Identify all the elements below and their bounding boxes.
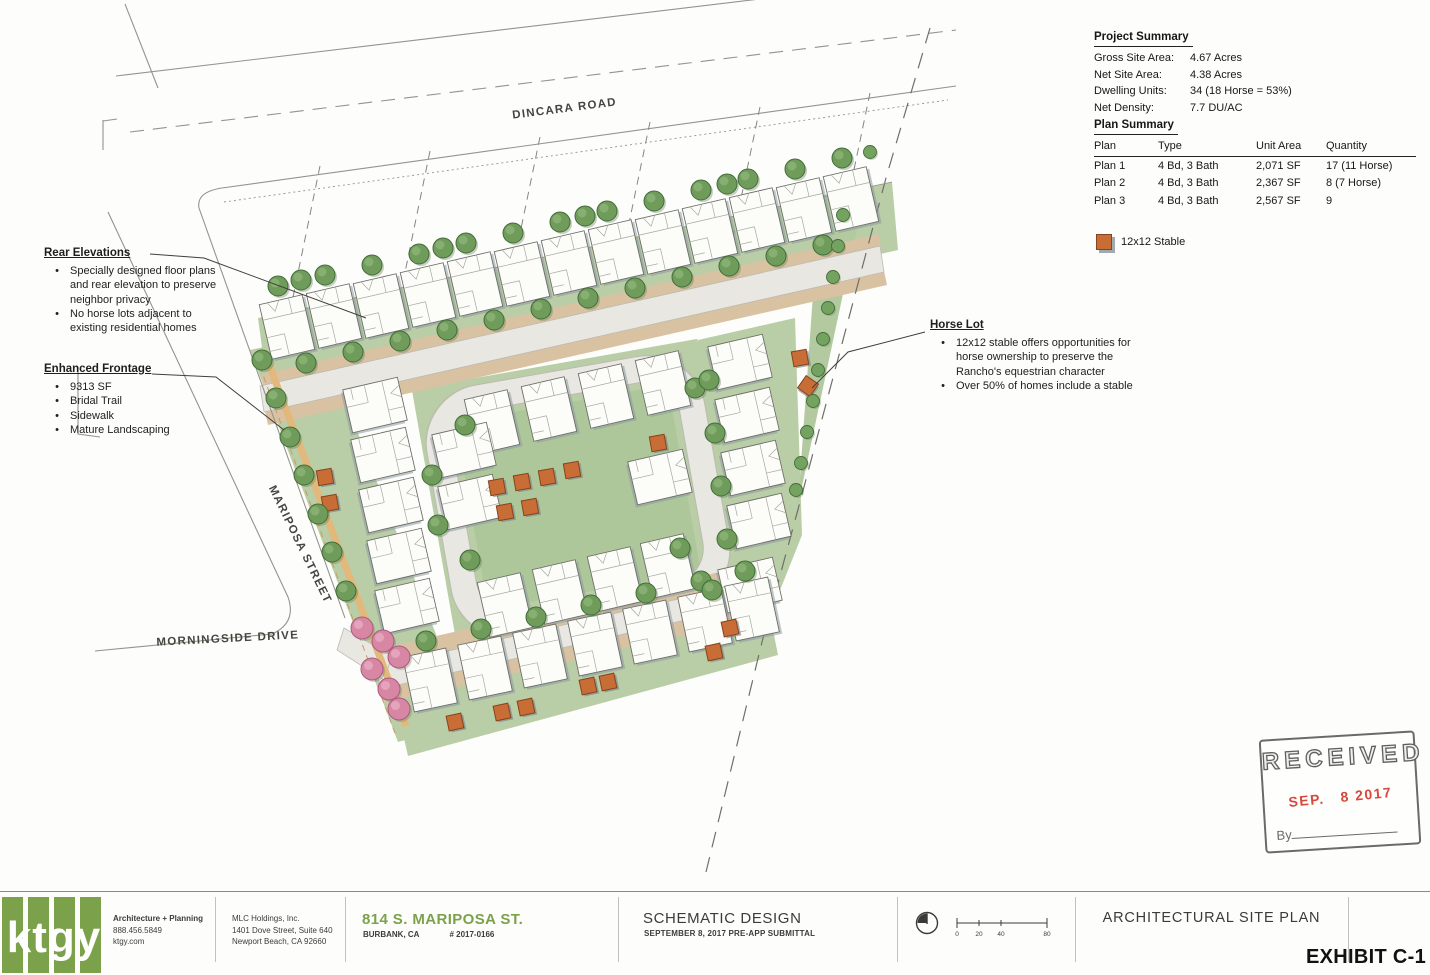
callout-bullet: •No horse lots adjacent to existing resi… bbox=[44, 307, 232, 336]
svg-text:20: 20 bbox=[975, 931, 983, 938]
table-header-row: Plan Type Unit Area Quantity bbox=[1094, 138, 1416, 156]
titleblock-top-border bbox=[0, 891, 1430, 892]
project-summary-title: Project Summary bbox=[1094, 29, 1193, 47]
client-name: MLC Holdings, Inc. bbox=[232, 913, 333, 925]
callout-bullet: •Sidewalk bbox=[44, 409, 232, 423]
titleblock-divider bbox=[1075, 897, 1076, 962]
callout-bullet: •Mature Landscaping bbox=[44, 423, 232, 437]
callout-bullet: •Bridal Trail bbox=[44, 394, 232, 408]
callout-enhanced-frontage: Enhanced Frontage •9313 SF •Bridal Trail… bbox=[44, 362, 232, 437]
svg-text:80: 80 bbox=[1043, 931, 1051, 938]
sheet-title: ARCHITECTURAL SITE PLAN bbox=[1075, 910, 1348, 926]
client-address1: 1401 Dove Street, Suite 640 bbox=[232, 925, 333, 937]
scale-bar: 0 20 40 80 bbox=[955, 915, 1055, 939]
callout-title: Rear Elevations bbox=[44, 246, 232, 261]
stable-swatch-icon bbox=[1096, 234, 1112, 250]
summary-row: Net Density:7.7 DU/AC bbox=[1094, 100, 1414, 117]
project-city: BURBANK, CA bbox=[363, 930, 419, 939]
received-stamp: RECEIVED SEP. 8 2017 By bbox=[1259, 730, 1422, 853]
north-arrow-icon bbox=[915, 911, 941, 937]
svg-text:0: 0 bbox=[955, 931, 959, 938]
ktgy-logo: ktgy bbox=[2, 897, 106, 973]
callout-title: Horse Lot bbox=[930, 318, 1142, 333]
titleblock-divider bbox=[618, 897, 619, 962]
project-title: 814 S. MARIPOSA ST. bbox=[362, 911, 523, 928]
street-label-morningside: MORNINGSIDE DRIVE bbox=[156, 629, 299, 648]
bullet-dot: • bbox=[44, 380, 70, 394]
callout-bullet: •9313 SF bbox=[44, 380, 232, 394]
exhibit-label: EXHIBIT C-1 bbox=[1306, 946, 1426, 969]
stamp-by-line: By bbox=[1276, 821, 1398, 843]
street-label-dincara: DINCARA ROAD bbox=[512, 96, 618, 121]
bullet-dot: • bbox=[930, 336, 956, 379]
plan-summary-table: Plan Type Unit Area Quantity Plan 14 Bd,… bbox=[1094, 138, 1416, 209]
titleblock-divider bbox=[215, 897, 216, 962]
callout-rear-elevations: Rear Elevations •Specially designed floo… bbox=[44, 246, 232, 335]
bullet-dot: • bbox=[44, 264, 70, 307]
legend-stable: 12x12 Stable bbox=[1096, 234, 1185, 250]
summary-row: Net Site Area:4.38 Acres bbox=[1094, 67, 1414, 84]
callout-horse-lot: Horse Lot •12x12 stable offers opportuni… bbox=[930, 318, 1142, 393]
legend-label: 12x12 Stable bbox=[1121, 236, 1185, 248]
firm-label: Architecture + Planning bbox=[113, 913, 203, 925]
bullet-dot: • bbox=[930, 379, 956, 393]
plan-summary-title: Plan Summary bbox=[1094, 117, 1178, 135]
phase-title: SCHEMATIC DESIGN bbox=[643, 910, 802, 927]
firm-phone: 888.456.5849 bbox=[113, 925, 203, 937]
callout-bullet: •Over 50% of homes include a stable bbox=[930, 379, 1142, 393]
callout-bullet: •12x12 stable offers opportunities for h… bbox=[930, 336, 1142, 379]
callout-bullet: •Specially designed floor plans and rear… bbox=[44, 264, 232, 307]
table-row: Plan 14 Bd, 3 Bath 2,071 SF17 (11 Horse) bbox=[1094, 156, 1416, 174]
svg-text:40: 40 bbox=[997, 931, 1005, 938]
bullet-dot: • bbox=[44, 423, 70, 437]
summary-row: Dwelling Units:34 (18 Horse = 53%) bbox=[1094, 83, 1414, 100]
callout-title: Enhanced Frontage bbox=[44, 362, 232, 377]
project-subtitle: BURBANK, CA # 2017-0166 bbox=[363, 930, 494, 939]
by-signature-line bbox=[1291, 821, 1398, 839]
table-row: Plan 24 Bd, 3 Bath 2,367 SF8 (7 Horse) bbox=[1094, 174, 1416, 192]
bullet-dot: • bbox=[44, 394, 70, 408]
titleblock-divider bbox=[897, 897, 898, 962]
client-address2: Newport Beach, CA 92660 bbox=[232, 936, 333, 948]
bullet-dot: • bbox=[44, 307, 70, 336]
firm-website: ktgy.com bbox=[113, 936, 203, 948]
stamp-date: SEP. 8 2017 bbox=[1288, 784, 1393, 810]
project-summary: Project Summary Gross Site Area:4.67 Acr… bbox=[1094, 29, 1414, 116]
plan-summary: Plan Summary Plan Type Unit Area Quantit… bbox=[1094, 117, 1424, 209]
client-block: MLC Holdings, Inc. 1401 Dove Street, Sui… bbox=[232, 913, 333, 948]
firm-contact-block: Architecture + Planning 888.456.5849 ktg… bbox=[113, 913, 203, 948]
table-row: Plan 34 Bd, 3 Bath 2,567 SF9 bbox=[1094, 192, 1416, 210]
logo-wordmark: ktgy bbox=[3, 913, 105, 963]
stamp-title: RECEIVED bbox=[1261, 739, 1414, 776]
titleblock-divider bbox=[345, 897, 346, 962]
bullet-dot: • bbox=[44, 409, 70, 423]
summary-row: Gross Site Area:4.67 Acres bbox=[1094, 50, 1414, 67]
phase-subtitle: SEPTEMBER 8, 2017 PRE-APP SUBMITTAL bbox=[644, 929, 815, 938]
project-number: # 2017-0166 bbox=[449, 930, 494, 939]
